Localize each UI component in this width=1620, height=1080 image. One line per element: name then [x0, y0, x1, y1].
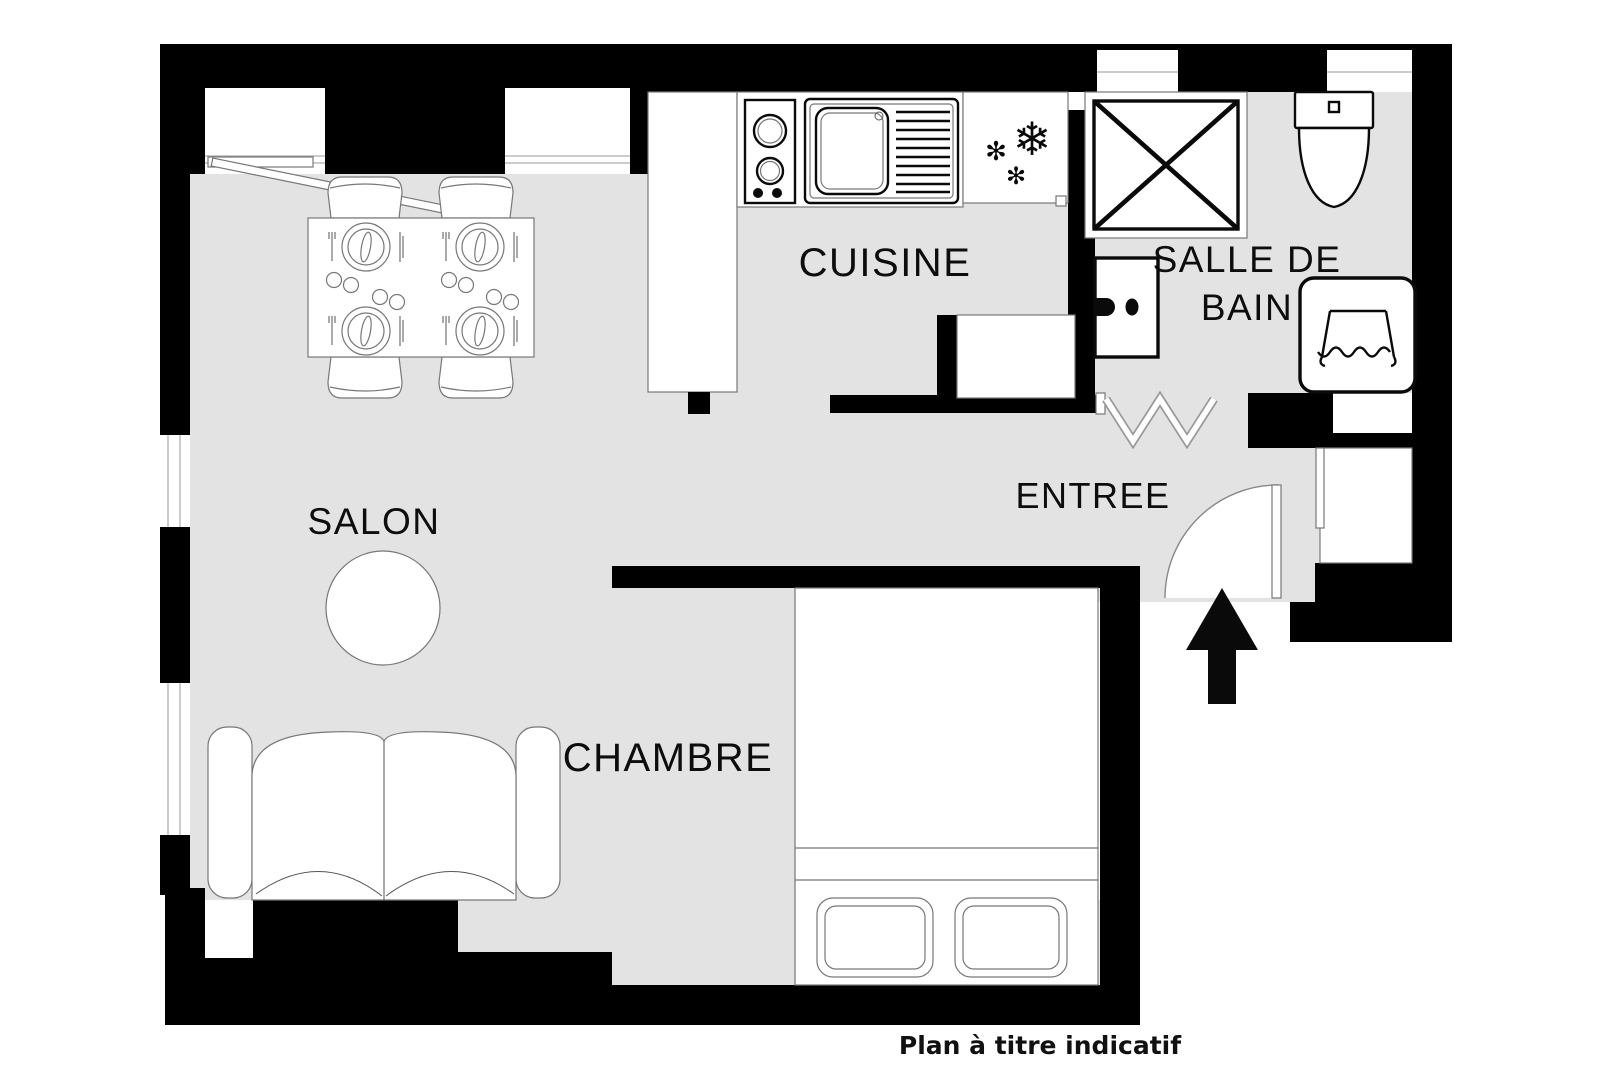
sofa-armrest	[208, 727, 252, 898]
shower	[1085, 92, 1247, 238]
snowflake-icon: ✻	[985, 137, 1007, 167]
wall-bridge-east	[1333, 433, 1412, 448]
room-label-salle-de-bain-line1: SALLE DE	[1153, 239, 1342, 280]
entrance-arrow-icon	[1186, 588, 1258, 704]
cabinet-foot	[688, 392, 710, 414]
snowflake-icon: ✻	[1006, 162, 1026, 190]
room-label-salle-de-bain-line2: BAIN	[1201, 287, 1293, 328]
door-leaf	[1272, 485, 1281, 598]
cabinet-knob	[1097, 298, 1115, 316]
tall-cabinet	[648, 92, 737, 392]
fridge: ❄ ✻ ✻	[963, 92, 1068, 206]
dining-chair	[328, 177, 402, 218]
kitchen-niche	[957, 315, 1075, 398]
sofa	[208, 727, 560, 900]
fridge-hinge	[1056, 196, 1066, 206]
plan-footnote: Plan à titre indicatif	[899, 1031, 1182, 1060]
bathroom-cabinet	[1095, 258, 1158, 357]
cooktop-knob	[753, 188, 763, 198]
washer-body	[1300, 278, 1415, 392]
sofa-armrest	[516, 727, 560, 898]
room-label-salon: SALON	[308, 501, 441, 542]
landing-closet-door	[1316, 448, 1324, 528]
cabinet-dot	[1126, 299, 1139, 316]
window-recess-3	[1097, 50, 1178, 92]
wall-right	[1412, 44, 1452, 642]
room-label-chambre: CHAMBRE	[563, 736, 774, 780]
cooktop	[745, 100, 795, 203]
wall-chambre-right	[1100, 566, 1140, 1025]
floor-plan: ❄ ✻ ✻	[0, 0, 1620, 1080]
wall-notch	[205, 900, 253, 958]
wall-left-pillar	[160, 527, 190, 683]
recess-east	[1333, 393, 1412, 433]
bed-mattress	[795, 588, 1098, 985]
window-recess-4	[1327, 50, 1412, 92]
cooktop-knob	[772, 188, 782, 198]
bed	[795, 588, 1098, 985]
wall-closet-south	[1315, 563, 1415, 603]
wall-niche-column	[937, 315, 957, 398]
wall-below-washer	[1248, 393, 1333, 448]
dining-chair	[439, 357, 513, 398]
floor-plan-page: ❄ ✻ ✻	[0, 0, 1620, 1080]
wall-entrance-east	[1290, 602, 1452, 642]
room-label-entree: ENTREE	[1015, 475, 1170, 516]
wall-chambre-top	[612, 566, 1100, 588]
sink-basin	[816, 108, 888, 194]
dining-chair	[439, 177, 513, 218]
coffee-table	[326, 551, 440, 665]
washing-machine	[1300, 278, 1415, 392]
wall-left-lower	[160, 835, 190, 895]
window-left-1	[155, 435, 190, 527]
landing-closet	[1320, 448, 1412, 563]
dining-chair	[328, 357, 402, 398]
window-left-2	[155, 683, 190, 835]
wall-top-band	[650, 44, 1412, 92]
wall-left-upper	[160, 174, 190, 435]
kitchen-sink	[805, 99, 958, 203]
toilet-button	[1329, 102, 1339, 112]
room-label-cuisine: CUISINE	[799, 241, 972, 285]
window-recess-2	[505, 88, 630, 174]
snowflake-icon: ❄	[1013, 112, 1052, 166]
